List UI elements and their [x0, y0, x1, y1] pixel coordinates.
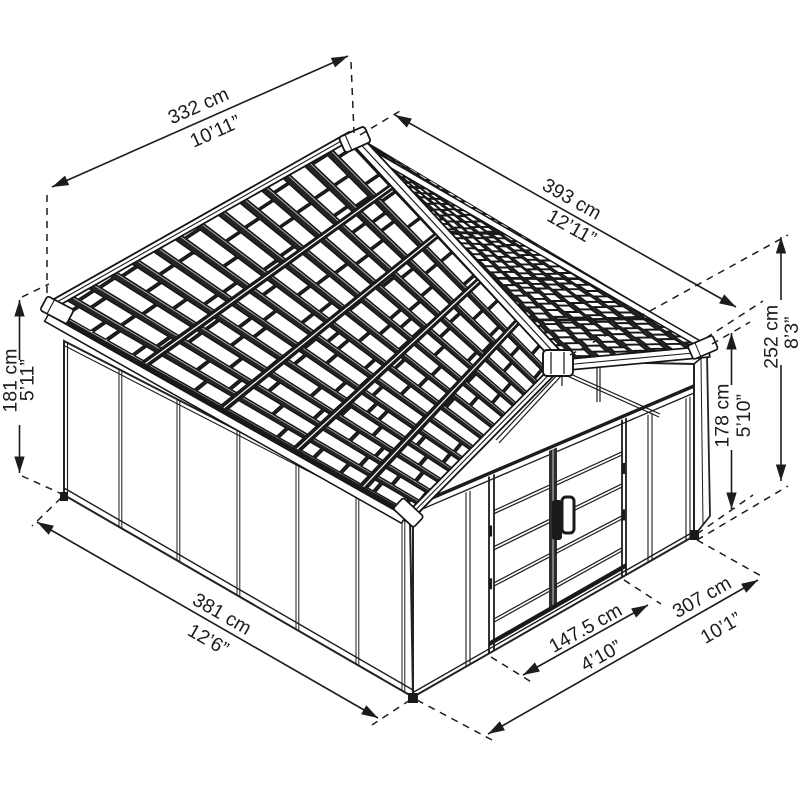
- svg-text:5’11”: 5’11”: [17, 359, 39, 401]
- svg-text:252 cm: 252 cm: [760, 305, 782, 369]
- svg-text:8’3”: 8’3”: [781, 316, 800, 349]
- svg-text:178 cm: 178 cm: [712, 384, 734, 448]
- svg-text:5’10”: 5’10”: [733, 394, 755, 437]
